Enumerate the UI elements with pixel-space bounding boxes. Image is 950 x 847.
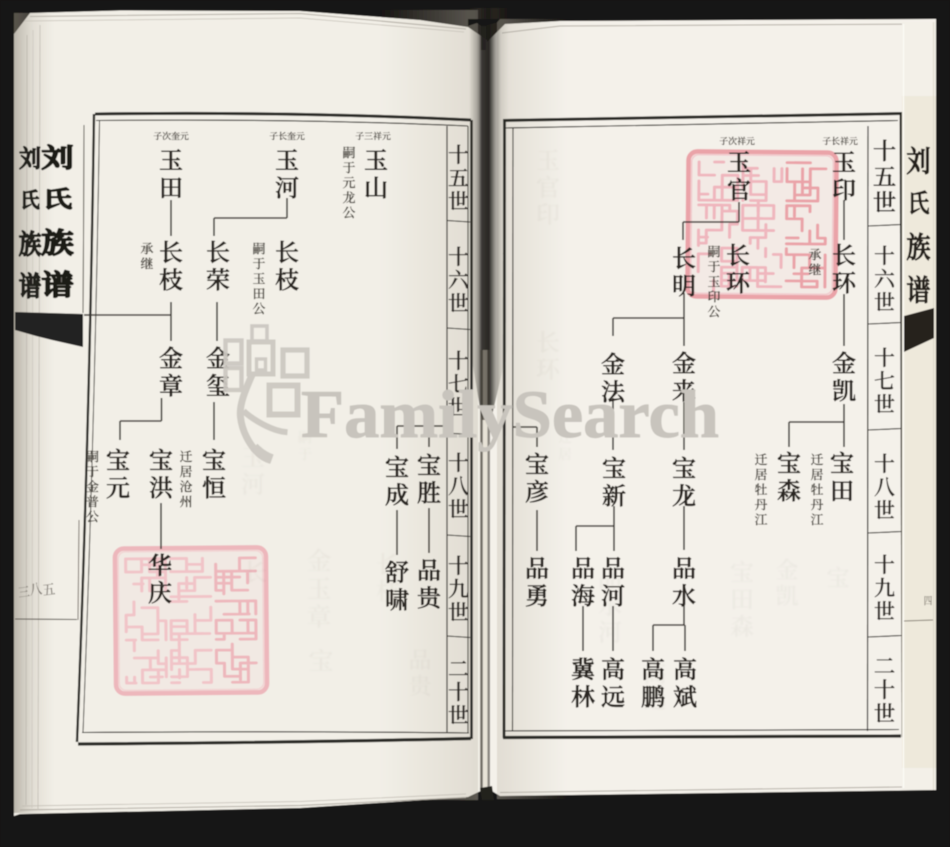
svg-text:FamilySearch: FamilySearch xyxy=(301,376,719,452)
